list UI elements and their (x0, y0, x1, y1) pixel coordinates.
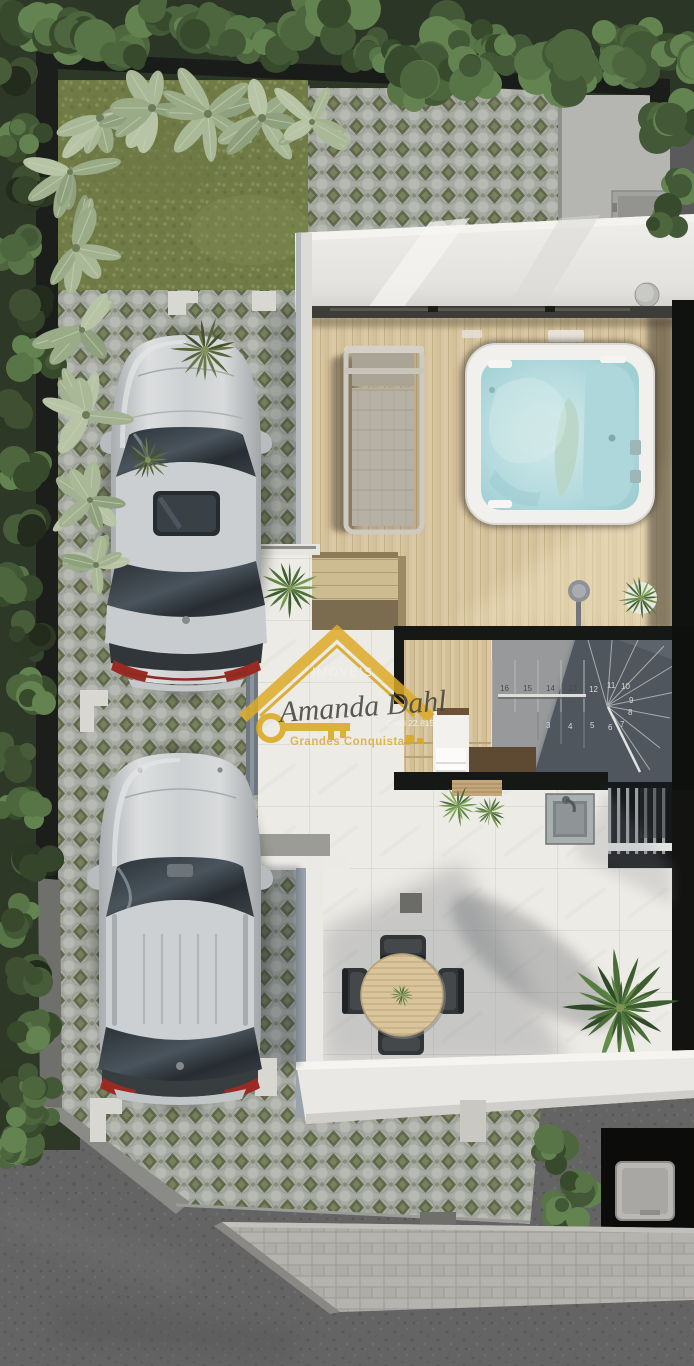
svg-text:10: 10 (621, 682, 630, 691)
svg-text:4: 4 (568, 722, 573, 731)
svg-text:Creci 22.815: Creci 22.815 (386, 718, 434, 728)
svg-text:13: 13 (568, 684, 577, 693)
svg-text:IMÓVEIS: IMÓVEIS (312, 666, 374, 679)
svg-text:7: 7 (620, 720, 625, 729)
svg-text:15: 15 (523, 684, 532, 693)
svg-text:11: 11 (607, 681, 616, 690)
svg-text:16: 16 (500, 684, 509, 693)
svg-text:3: 3 (546, 721, 551, 730)
svg-text:Grandes Conquistas: Grandes Conquistas (290, 736, 411, 748)
svg-text:6: 6 (608, 723, 613, 732)
svg-text:14: 14 (546, 684, 555, 693)
svg-text:8: 8 (628, 708, 633, 717)
svg-text:9: 9 (629, 696, 634, 705)
svg-text:5: 5 (590, 721, 595, 730)
svg-text:12: 12 (589, 685, 598, 694)
